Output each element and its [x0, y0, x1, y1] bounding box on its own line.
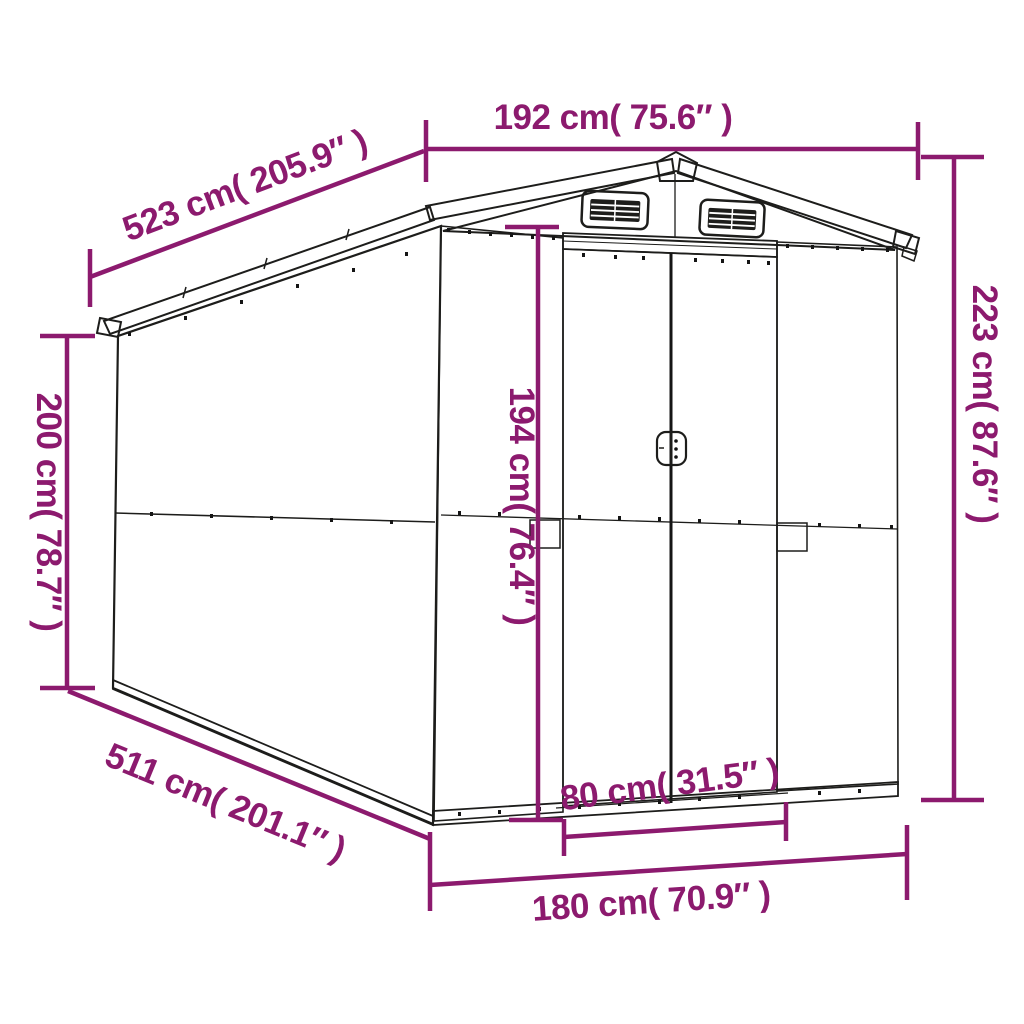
dimension-roof-width: 192 cm( 75.6″ )	[426, 98, 918, 182]
dimension-door-height: 194 cm( 76.4″ )	[502, 227, 563, 820]
dimension-front-width: 180 cm( 70.9″ )	[430, 825, 907, 929]
roof-eave-joints	[183, 229, 349, 298]
dimension-label-door-width: 80 cm( 31.5″ )	[558, 751, 781, 818]
dimension-label-front-width: 180 cm( 70.9″ )	[531, 874, 772, 929]
dimension-total-height: 223 cm( 87.6″ )	[921, 157, 1004, 800]
door-handle	[657, 432, 686, 465]
dimension-base-length: 511 cm( 201.1″ )	[68, 691, 430, 869]
dimension-roof-length: 523 cm( 205.9″ )	[90, 121, 424, 307]
front-wall-right-panel	[777, 242, 898, 791]
dimension-wall-height: 200 cm( 78.7″ )	[29, 336, 95, 688]
left-wall-seam	[115, 513, 435, 522]
dimension-label-roof-width: 192 cm( 75.6″ )	[494, 98, 733, 137]
gable-vent-left	[581, 191, 649, 230]
dimension-label-wall-height: 200 cm( 78.7″ )	[29, 393, 68, 632]
dimension-label-total-height: 223 cm( 87.6″ )	[965, 285, 1004, 524]
shed-dimension-diagram: 192 cm( 75.6″ ) 523 cm( 205.9″ ) 200 cm(…	[0, 0, 1024, 1024]
diagram-canvas: 192 cm( 75.6″ ) 523 cm( 205.9″ ) 200 cm(…	[0, 0, 1024, 1024]
door-header-groove	[563, 241, 777, 249]
gable-vent-right	[699, 199, 765, 237]
dimension-door-width: 80 cm( 31.5″ )	[558, 751, 786, 856]
gable-face	[443, 171, 895, 250]
dimension-label-door-height: 194 cm( 76.4″ )	[502, 387, 541, 626]
front-wall-left-panel	[434, 226, 563, 821]
door-hinge-plate-right	[777, 523, 807, 551]
